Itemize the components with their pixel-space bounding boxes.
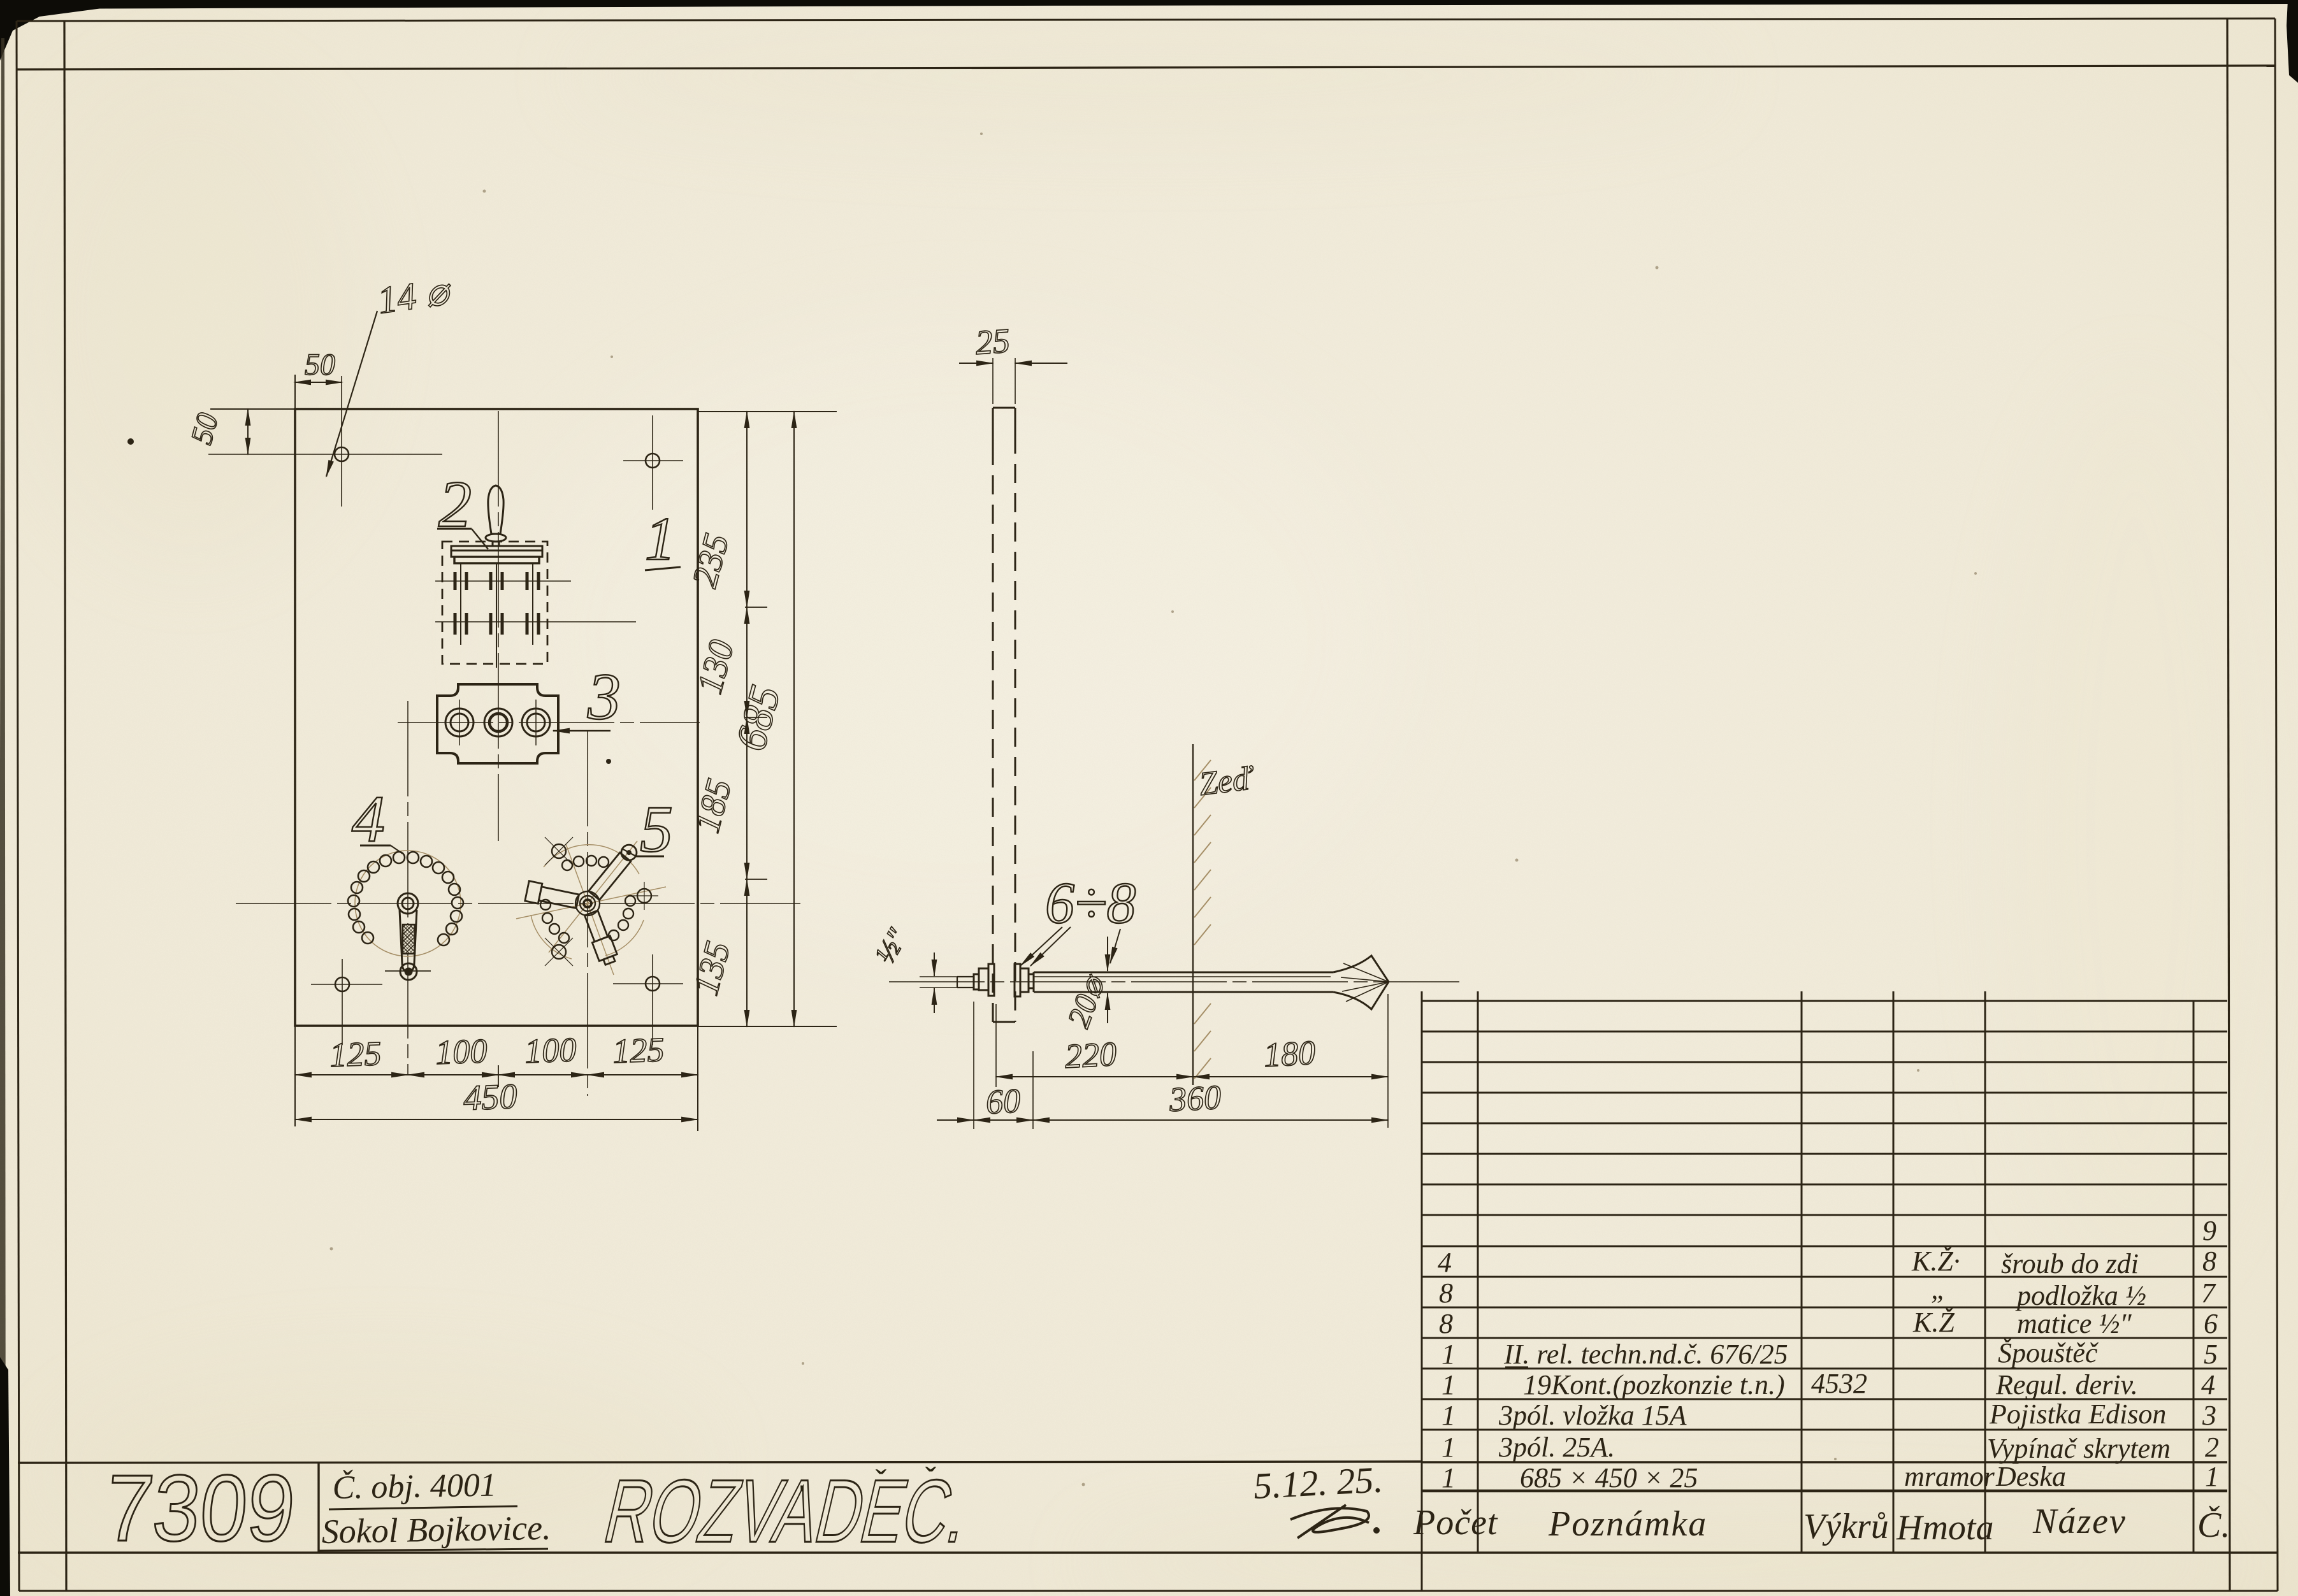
svg-text:1: 1 (1442, 1432, 1456, 1463)
svg-text:1: 1 (1442, 1400, 1456, 1431)
svg-text:6: 6 (2204, 1308, 2218, 1339)
svg-text:4: 4 (2201, 1369, 2215, 1400)
svg-text:5: 5 (640, 793, 673, 866)
svg-text:Zeď: Zeď (1197, 760, 1257, 803)
svg-text:60: 60 (985, 1081, 1021, 1121)
svg-text:19Kont.(pozkonzie t.n.): 19Kont.(pozkonzie t.n.) (1523, 1369, 1785, 1400)
svg-text:8: 8 (2202, 1246, 2216, 1277)
svg-text:Deska: Deska (1995, 1461, 2066, 1492)
svg-text:125: 125 (329, 1034, 382, 1074)
svg-text:7: 7 (2201, 1277, 2216, 1309)
svg-text:ˇ: ˇ (876, 1464, 886, 1501)
svg-text:3pól. vložka 15A: 3pól. vložka 15A (1498, 1400, 1687, 1431)
svg-text:5.12. 25.: 5.12. 25. (1252, 1458, 1384, 1507)
svg-text:6÷8: 6÷8 (1045, 870, 1136, 935)
svg-text:Počet: Počet (1413, 1503, 1498, 1542)
svg-text:1: 1 (645, 505, 676, 573)
svg-text:4: 4 (1438, 1247, 1452, 1278)
svg-text:K.Ž·: K.Ž· (1911, 1246, 1960, 1277)
svg-text:II. rel. techn.nd.č. 676/25: II. rel. techn.nd.č. 676/25 (1503, 1339, 1788, 1370)
svg-text:Poznámka: Poznámka (1548, 1504, 1707, 1544)
svg-text:1: 1 (1442, 1462, 1456, 1493)
svg-text:4532: 4532 (1811, 1368, 1867, 1399)
svg-text:podložka ½: podložka ½ (2015, 1280, 2146, 1311)
svg-text:Výkrů: Výkrů (1803, 1507, 1889, 1546)
svg-text:K.Ž: K.Ž (1912, 1307, 1955, 1338)
svg-text:360: 360 (1167, 1078, 1222, 1119)
svg-text:Vypínač skrytem: Vypínač skrytem (1987, 1433, 2171, 1464)
svg-text:8: 8 (1439, 1277, 1453, 1309)
svg-text:50: 50 (305, 348, 335, 382)
svg-text:220: 220 (1064, 1035, 1117, 1075)
svg-text:ˇ: ˇ (925, 1462, 936, 1499)
svg-text:1: 1 (1442, 1339, 1456, 1370)
svg-text:Regul. deriv.: Regul. deriv. (1995, 1369, 2138, 1400)
svg-text:Č. obj. 4001: Č. obj. 4001 (332, 1467, 496, 1506)
svg-text:1: 1 (1442, 1369, 1456, 1400)
svg-text:Č.: Č. (2197, 1506, 2230, 1545)
svg-text:Sokol Bojkovice.: Sokol Bojkovice. (321, 1509, 551, 1551)
svg-text:3pól. 25A.: 3pól. 25A. (1498, 1432, 1615, 1463)
svg-text:mramor: mramor (1904, 1461, 1995, 1492)
svg-text:„: „ (1931, 1274, 1946, 1305)
svg-text:Špouštěč: Špouštěč (1998, 1337, 2099, 1369)
svg-text:180: 180 (1262, 1033, 1316, 1074)
svg-text:šroub do zdi: šroub do zdi (2001, 1248, 2139, 1279)
svg-text:': ' (799, 1479, 804, 1509)
svg-text:2: 2 (2205, 1432, 2219, 1463)
svg-text:matice ½″: matice ½″ (2017, 1308, 2132, 1339)
svg-text:125: 125 (612, 1030, 665, 1070)
svg-text:Název: Název (2032, 1502, 2127, 1541)
svg-text:ROZVADEC.: ROZVADEC. (596, 1462, 979, 1562)
svg-text:2: 2 (438, 468, 472, 541)
svg-text:7309: 7309 (101, 1456, 299, 1561)
svg-text:Pojistka Edison: Pojistka Edison (1989, 1398, 2166, 1430)
svg-text:450: 450 (463, 1077, 517, 1118)
svg-text:1: 1 (2205, 1461, 2219, 1492)
svg-text:3: 3 (2202, 1400, 2216, 1431)
svg-text:100: 100 (435, 1032, 488, 1072)
svg-text:5: 5 (2204, 1339, 2218, 1370)
svg-text:9: 9 (2202, 1215, 2216, 1246)
svg-text:25: 25 (974, 321, 1011, 362)
svg-text:Hmota: Hmota (1896, 1508, 1993, 1548)
svg-text:8: 8 (1439, 1308, 1453, 1339)
svg-text:100: 100 (524, 1030, 577, 1070)
svg-text:685 × 450 × 25: 685 × 450 × 25 (1520, 1462, 1698, 1493)
svg-text:3: 3 (587, 660, 621, 733)
